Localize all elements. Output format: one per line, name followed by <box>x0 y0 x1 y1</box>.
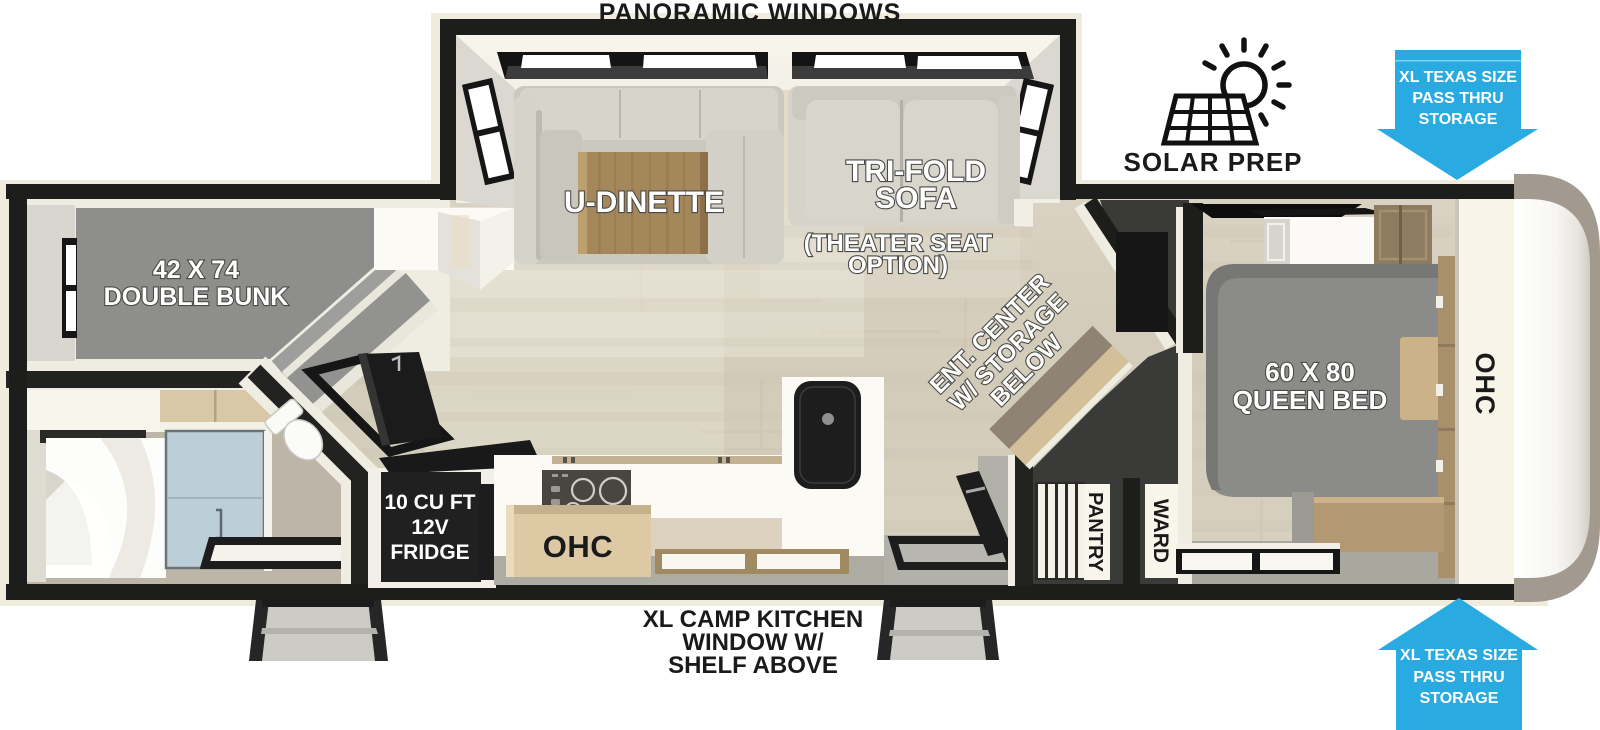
svg-text:U-DINETTE: U-DINETTE <box>564 186 724 219</box>
svg-text:DOUBLE BUNK: DOUBLE BUNK <box>104 283 289 311</box>
svg-text:SOLAR PREP: SOLAR PREP <box>1123 147 1302 177</box>
svg-text:12V: 12V <box>411 516 448 539</box>
svg-text:FRIDGE: FRIDGE <box>390 541 469 564</box>
svg-text:SHELF ABOVE: SHELF ABOVE <box>668 652 838 679</box>
svg-text:STORAGE: STORAGE <box>1419 111 1498 128</box>
svg-text:XL TEXAS SIZE: XL TEXAS SIZE <box>1400 647 1518 664</box>
svg-text:XL TEXAS SIZE: XL TEXAS SIZE <box>1399 69 1517 86</box>
svg-text:OPTION): OPTION) <box>848 252 948 279</box>
svg-text:PASS THRU: PASS THRU <box>1413 669 1504 686</box>
svg-text:SOFA: SOFA <box>875 182 957 215</box>
svg-text:PANTRY: PANTRY <box>1084 492 1106 573</box>
svg-text:PASS THRU: PASS THRU <box>1412 90 1503 107</box>
svg-text:60 X 80: 60 X 80 <box>1265 357 1355 387</box>
svg-text:PANORAMIC WINDOWS: PANORAMIC WINDOWS <box>599 0 902 27</box>
svg-text:QUEEN BED: QUEEN BED <box>1233 385 1388 415</box>
svg-text:42 X 74: 42 X 74 <box>153 256 239 284</box>
svg-text:10 CU FT: 10 CU FT <box>384 491 475 514</box>
svg-text:STORAGE: STORAGE <box>1420 690 1499 707</box>
svg-text:OHC: OHC <box>1470 353 1500 416</box>
svg-text:WARD: WARD <box>1149 499 1172 563</box>
svg-text:OHC: OHC <box>543 529 613 564</box>
